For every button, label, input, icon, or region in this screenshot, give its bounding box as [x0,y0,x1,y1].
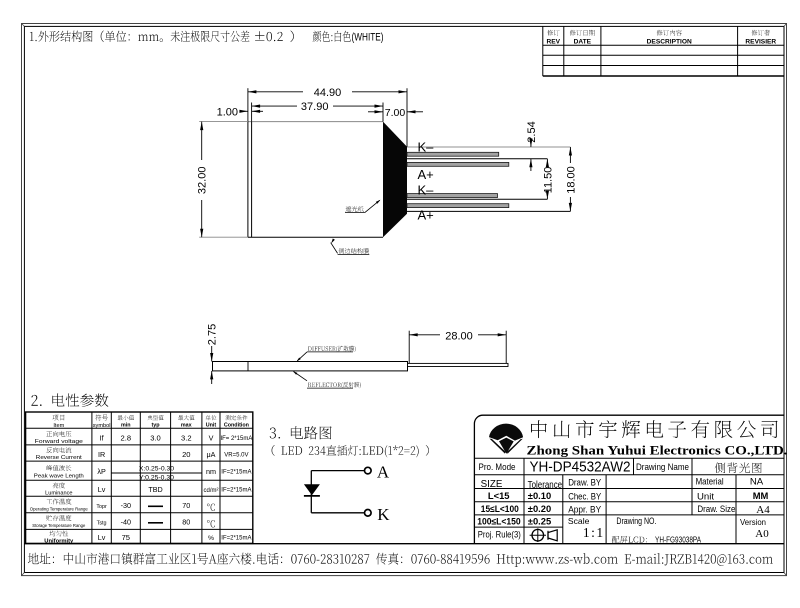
svg-text:18.00: 18.00 [565,166,577,194]
svg-text:IF=2*15mA: IF=2*15mA [221,469,251,475]
svg-text:15≤L<100: 15≤L<100 [481,504,519,514]
svg-text:REVISIER: REVISIER [745,39,776,46]
svg-text:%: % [208,535,214,542]
svg-text:Tstg: Tstg [97,520,107,526]
svg-text:±0.25: ±0.25 [528,516,551,527]
svg-text:MM: MM [753,490,769,501]
svg-text:Reverse Current: Reverse Current [36,455,82,461]
svg-text:44.90: 44.90 [314,87,342,99]
svg-text:SIZE: SIZE [481,479,503,490]
svg-text:X:0.25-0.30: X:0.25-0.30 [139,466,174,473]
svg-text:7.00: 7.00 [385,107,406,119]
svg-text:Lv: Lv [98,485,106,494]
svg-text:cd/m²: cd/m² [204,488,219,494]
svg-text:VR=5.0V: VR=5.0V [224,452,248,458]
svg-text:20: 20 [182,450,190,459]
svg-text:DATE: DATE [574,39,592,46]
svg-text:Operating Temperature Range: Operating Temperature Range [30,506,88,512]
svg-text:37.90: 37.90 [301,101,329,113]
svg-text:3.2: 3.2 [181,434,192,443]
svg-text:Lv: Lv [98,533,106,542]
svg-text:75: 75 [122,533,130,542]
svg-text:max: max [181,423,192,429]
svg-text:Drawing NO.: Drawing NO. [616,516,656,526]
svg-text:nm: nm [206,467,216,476]
svg-text:V: V [209,434,214,443]
svg-text:Storage Temperature Range: Storage Temperature Range [32,523,85,529]
svg-text:A4: A4 [756,504,770,516]
svg-text:Peak wave Length: Peak wave Length [34,473,84,479]
svg-text:±0.20: ±0.20 [528,503,551,514]
svg-text:1.00: 1.00 [217,106,238,118]
svg-text:K: K [377,505,390,524]
svg-text:Appr. BY: Appr. BY [568,505,602,516]
svg-text:K–: K– [418,182,435,197]
svg-text:symbol: symbol [93,423,111,429]
svg-text:-30: -30 [121,501,131,510]
svg-text:Forward voltage: Forward voltage [35,439,83,445]
svg-text:Proj. Rule(3): Proj. Rule(3) [478,530,521,540]
svg-text:A0: A0 [755,528,769,540]
svg-text:Unit: Unit [206,423,217,429]
svg-text:2.8: 2.8 [121,434,132,443]
svg-text:λP: λP [97,467,106,476]
svg-text:IF=2*15mA: IF=2*15mA [221,488,251,494]
svg-text:(WHITE): (WHITE) [352,31,384,43]
svg-text:A+: A+ [418,167,434,182]
svg-text:DESCRIPTION: DESCRIPTION [647,39,692,46]
svg-text:If: If [100,434,104,443]
svg-text:min: min [121,423,131,429]
svg-text:Chec. BY: Chec. BY [568,491,601,502]
svg-text:TBD: TBD [148,485,162,494]
svg-text:Topr: Topr [96,504,107,510]
svg-text:IR: IR [98,450,105,459]
svg-text:IF= 2*15mA: IF= 2*15mA [220,436,252,442]
svg-text:Y:0.25-0.30: Y:0.25-0.30 [139,475,174,482]
svg-text:1:1: 1:1 [583,525,605,540]
svg-text:Draw. BY: Draw. BY [568,478,601,489]
svg-text:IF=2*15mA: IF=2*15mA [221,536,251,542]
svg-text:28.00: 28.00 [445,330,473,342]
svg-text:Drawing Name: Drawing Name [636,462,689,472]
svg-text:32.00: 32.00 [197,167,209,195]
svg-text:YH-DP4532AW2: YH-DP4532AW2 [530,458,631,475]
svg-text:Pro. Mode: Pro. Mode [479,462,516,472]
svg-text:μA: μA [207,450,216,459]
svg-text:±0.10: ±0.10 [528,490,551,501]
svg-text:Version: Version [740,517,766,527]
svg-text:80: 80 [182,518,190,527]
svg-text:Unit: Unit [697,492,714,503]
svg-text:3.0: 3.0 [150,434,161,443]
svg-text:100≤L<150: 100≤L<150 [477,517,521,527]
svg-text:Condition: Condition [224,423,249,429]
svg-text:11.50: 11.50 [542,167,554,194]
svg-text:L<15: L<15 [488,490,510,501]
svg-text:2.54: 2.54 [526,121,538,142]
svg-text:-40: -40 [121,518,131,527]
svg-text:Zhong Shan Yuhui Electronics C: Zhong Shan Yuhui Electronics CO.,LTD. [527,443,788,457]
svg-text:NA: NA [750,477,764,488]
svg-text:typ: typ [151,423,160,429]
svg-text:Material: Material [696,476,724,487]
svg-text:K–: K– [418,140,435,155]
svg-text:REV: REV [547,39,561,46]
svg-text:Luminance: Luminance [45,490,72,496]
svg-text:Item: Item [53,423,64,429]
svg-text:Draw. Size: Draw. Size [697,504,735,515]
svg-text:2.75: 2.75 [207,324,219,345]
svg-text:A: A [377,462,390,481]
svg-text:70: 70 [182,501,190,510]
svg-text:A+: A+ [418,208,434,223]
